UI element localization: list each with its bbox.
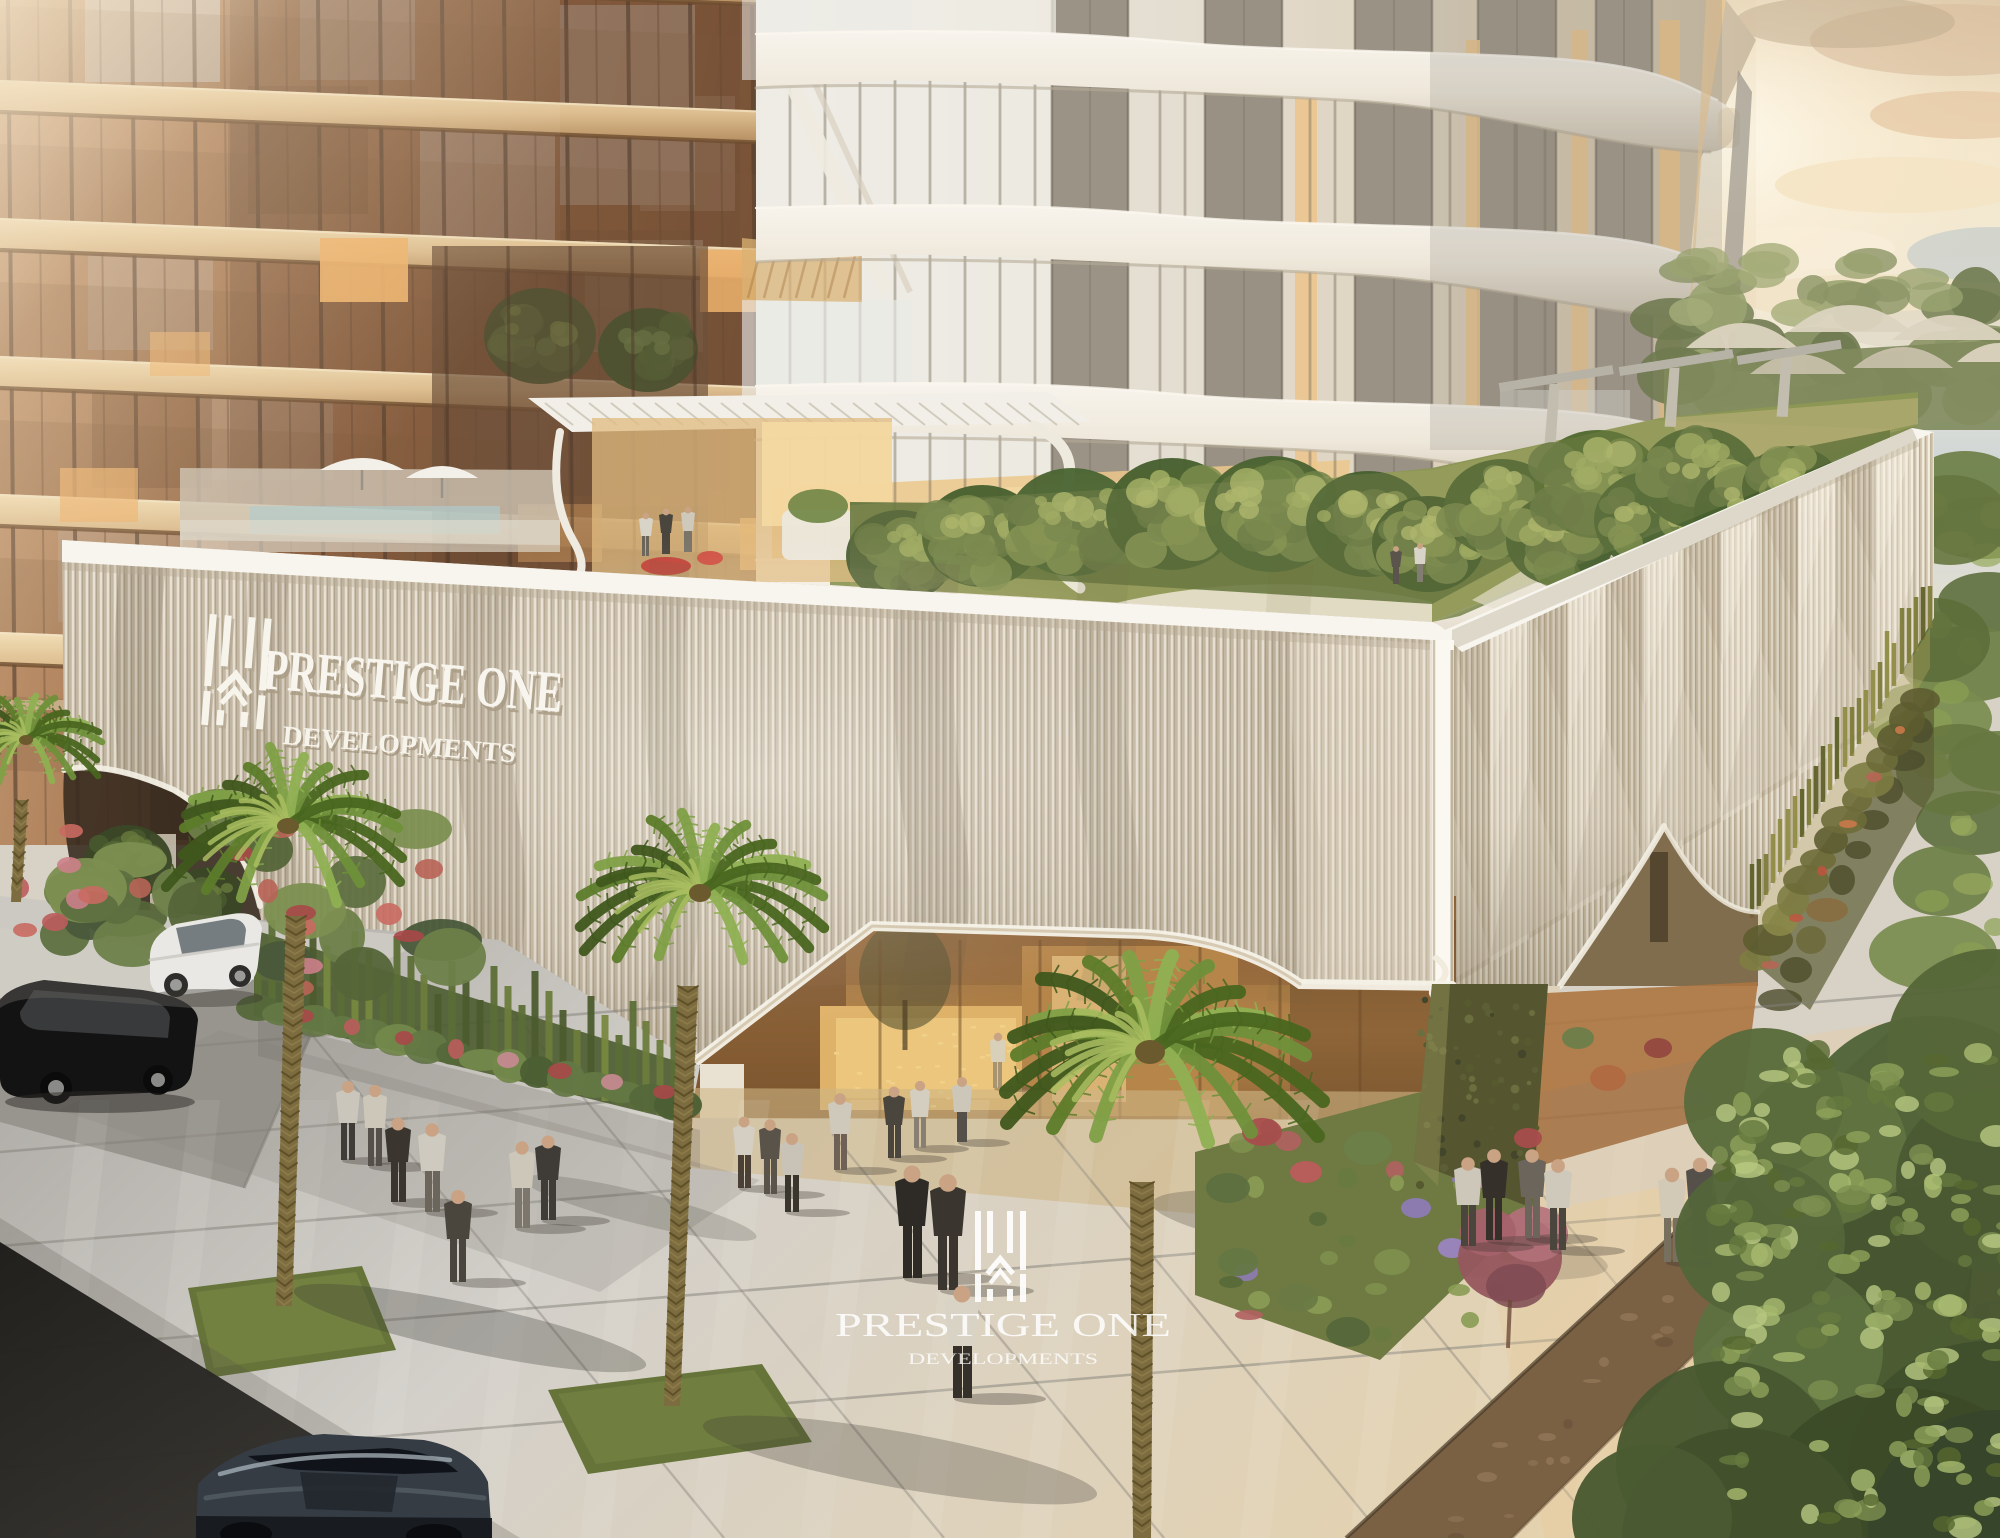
svg-text:DEVELOPMENTS: DEVELOPMENTS — [908, 1351, 1098, 1368]
svg-text:PRESTIGE ONE: PRESTIGE ONE — [835, 1307, 1171, 1344]
